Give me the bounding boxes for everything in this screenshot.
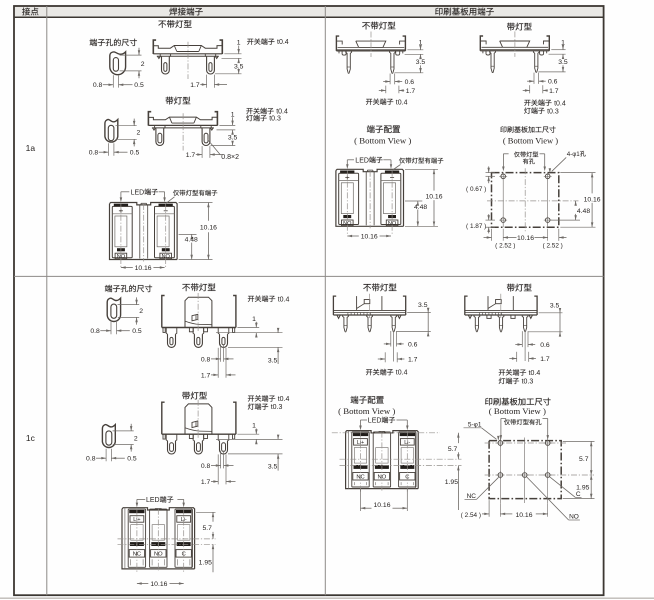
svg-text:0.8: 0.8 <box>201 463 211 470</box>
svg-text:( 0.67 ): ( 0.67 ) <box>466 186 486 193</box>
svg-text:LED: LED <box>146 497 160 504</box>
svg-text:10.16: 10.16 <box>584 196 601 203</box>
svg-text:2: 2 <box>139 308 143 315</box>
svg-text:10.16: 10.16 <box>515 512 532 519</box>
svg-text:1.7: 1.7 <box>549 88 559 95</box>
svg-text:10.16: 10.16 <box>373 502 390 509</box>
svg-text:1.7: 1.7 <box>408 357 418 364</box>
svg-text:3.5: 3.5 <box>416 59 426 66</box>
svg-text:10.16: 10.16 <box>200 225 217 232</box>
svg-text:2: 2 <box>141 61 145 68</box>
svg-text:1a: 1a <box>26 143 36 153</box>
svg-text:1.95: 1.95 <box>445 479 458 486</box>
svg-text:C: C <box>576 491 581 498</box>
svg-text:4.48: 4.48 <box>414 204 427 211</box>
svg-text:LED: LED <box>355 157 369 164</box>
svg-text:1: 1 <box>237 40 241 47</box>
svg-text:0.8: 0.8 <box>86 456 96 463</box>
svg-text:t0.4: t0.4 <box>529 370 541 377</box>
svg-text:3.5: 3.5 <box>550 302 560 309</box>
svg-text:10.16: 10.16 <box>150 581 167 588</box>
svg-text:4-φ1: 4-φ1 <box>567 151 581 158</box>
svg-text:t0.4: t0.4 <box>278 296 290 303</box>
svg-text:5.7: 5.7 <box>202 525 212 532</box>
svg-text:1.7: 1.7 <box>540 356 550 363</box>
svg-text:( Bottom View ): ( Bottom View ) <box>503 135 558 145</box>
svg-text:0.6: 0.6 <box>540 342 550 349</box>
svg-text:t0.4: t0.4 <box>278 396 290 403</box>
svg-text:0.8: 0.8 <box>201 357 211 364</box>
svg-text:1: 1 <box>252 316 256 323</box>
svg-text:0.5: 0.5 <box>130 150 140 157</box>
svg-text:0.8: 0.8 <box>89 150 99 157</box>
svg-text:t0.3: t0.3 <box>271 404 283 411</box>
svg-text:3.5: 3.5 <box>268 357 278 364</box>
svg-text:0.6: 0.6 <box>548 79 558 86</box>
svg-text:10.16: 10.16 <box>425 194 442 201</box>
svg-text:t0.3: t0.3 <box>547 108 559 115</box>
svg-text:10.16: 10.16 <box>135 265 152 272</box>
svg-text:4.48: 4.48 <box>185 236 198 243</box>
svg-text:0.5: 0.5 <box>132 328 142 335</box>
svg-text:t0.4: t0.4 <box>276 109 288 116</box>
svg-text:0.5: 0.5 <box>127 456 137 463</box>
svg-text:3.5: 3.5 <box>418 302 428 309</box>
svg-text:1.7: 1.7 <box>201 373 211 380</box>
svg-text:10.16: 10.16 <box>361 234 378 241</box>
svg-text:1.95: 1.95 <box>199 559 212 566</box>
svg-text:2: 2 <box>134 436 138 443</box>
svg-text:5-φ1: 5-φ1 <box>468 421 482 428</box>
svg-text:t0.4: t0.4 <box>396 99 408 106</box>
svg-text:1c: 1c <box>26 433 36 443</box>
svg-text:1.7: 1.7 <box>406 88 416 95</box>
svg-text:t0.3: t0.3 <box>269 116 281 123</box>
svg-text:0.8: 0.8 <box>90 328 100 335</box>
svg-text:1.7: 1.7 <box>186 152 196 159</box>
svg-text:1.95: 1.95 <box>576 484 589 491</box>
svg-text:LED: LED <box>368 418 382 425</box>
svg-text:0.5: 0.5 <box>134 82 144 89</box>
svg-text:( Bottom View ): ( Bottom View ) <box>489 406 546 416</box>
svg-text:1.7: 1.7 <box>201 479 211 486</box>
svg-text:t0.4: t0.4 <box>554 100 566 107</box>
svg-text:0.6: 0.6 <box>408 341 418 348</box>
svg-text:3.5: 3.5 <box>268 463 278 470</box>
svg-text:( Bottom View ): ( Bottom View ) <box>354 135 411 145</box>
svg-text:t0.3: t0.3 <box>522 379 534 386</box>
svg-text:1.7: 1.7 <box>190 82 200 89</box>
svg-text:( 2.54 ): ( 2.54 ) <box>461 512 481 519</box>
svg-text:5.7: 5.7 <box>579 456 589 463</box>
svg-text:t0.4: t0.4 <box>277 39 289 46</box>
svg-text:LED: LED <box>131 189 145 196</box>
svg-text:4.48: 4.48 <box>577 208 590 215</box>
svg-text:0.6: 0.6 <box>405 79 415 86</box>
svg-text:( Bottom View ): ( Bottom View ) <box>338 406 395 416</box>
svg-text:0.8: 0.8 <box>93 82 103 89</box>
svg-text:2: 2 <box>137 130 141 137</box>
svg-text:( 1.87 ): ( 1.87 ) <box>466 223 486 230</box>
svg-text:t0.4: t0.4 <box>396 370 408 377</box>
svg-text:5.7: 5.7 <box>448 446 458 453</box>
svg-text:NC: NC <box>467 493 477 500</box>
svg-text:NO: NO <box>569 514 579 521</box>
svg-text:10.16: 10.16 <box>517 235 534 242</box>
svg-text:( 2.52 ): ( 2.52 ) <box>495 243 515 250</box>
svg-text:1: 1 <box>252 423 256 430</box>
svg-text:3.5: 3.5 <box>228 135 238 142</box>
svg-text:0.8×2: 0.8×2 <box>221 154 239 161</box>
svg-text:( 2.52 ): ( 2.52 ) <box>543 243 563 250</box>
svg-text:3.5: 3.5 <box>558 59 568 66</box>
